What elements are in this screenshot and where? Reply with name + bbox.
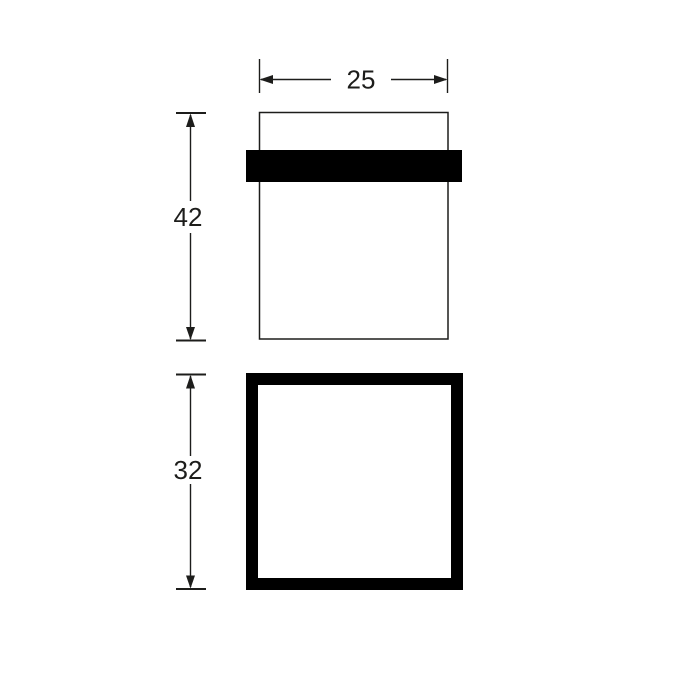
dimension-width-label: 25 [347, 65, 376, 95]
top-view-outline [252, 379, 457, 584]
arrow-left-icon [260, 75, 274, 84]
arrow-down-icon [186, 576, 195, 589]
dimension-height-top: 32 [174, 375, 206, 590]
dimension-front-height-label: 42 [174, 202, 203, 232]
dimension-width: 25 [260, 59, 448, 95]
arrow-down-icon [186, 327, 195, 340]
technical-drawing: 25 42 32 [0, 0, 700, 700]
arrow-right-icon [434, 75, 448, 84]
drawing-canvas: 25 42 32 [0, 0, 700, 700]
arrow-up-icon [186, 375, 195, 389]
front-view-outline [260, 113, 449, 340]
top-view [252, 379, 457, 584]
solid-band [246, 150, 462, 182]
dimension-height-front: 42 [174, 113, 206, 341]
arrow-up-icon [186, 114, 195, 128]
dimension-top-height-label: 32 [174, 455, 203, 485]
front-view [246, 113, 462, 340]
